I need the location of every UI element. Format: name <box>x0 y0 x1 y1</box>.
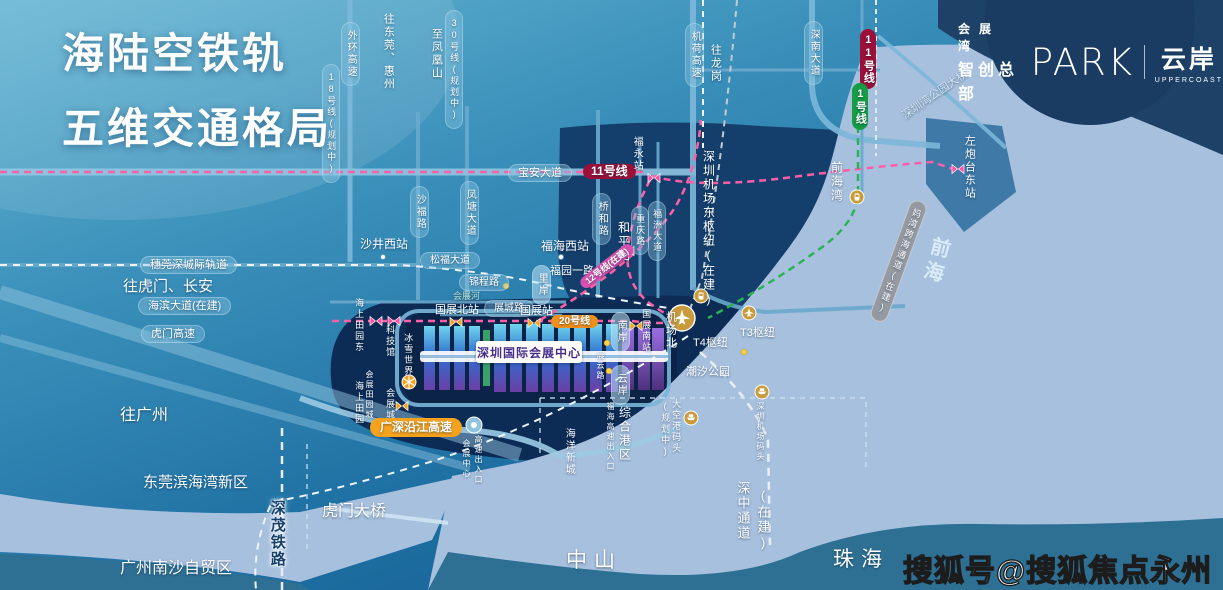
logo-name-cn: 云岸 <box>1161 40 1217 76</box>
exit-convention-center: 会展中心 <box>461 439 470 479</box>
dongguan-binhaiwan-new-area: 东莞滨海湾新区 <box>143 475 248 492</box>
logo-brand-bottom: 智创总部 <box>958 56 1021 104</box>
to-fenghuangshan: 至凤凰山 <box>430 28 442 80</box>
baoan-boulevard: 宝安大道 <box>508 164 572 182</box>
binhai-boulevard: 海滨大道(在建) <box>138 297 231 315</box>
fuhai-west-station: 福海西站 <box>541 240 589 253</box>
zhongshan: 中山 <box>566 549 622 573</box>
jincheng-road: 锦程路 <box>459 274 509 291</box>
shafu-road: 沙福路 <box>410 186 429 238</box>
to-longgang: 往龙岗 <box>709 44 721 83</box>
lian-parcel: 里岸 <box>532 265 551 305</box>
haishang-tianyuan-east-station: 海上田园东 <box>354 298 364 353</box>
shenmao-railway: 深茂铁路 <box>268 500 285 568</box>
qiaohe-road: 桥和路 <box>592 193 611 245</box>
convention-center-label: 深圳国际会展中心 <box>476 341 582 363</box>
fengtang-boulevard: 凤塘大道 <box>460 181 479 245</box>
yunan-parcel: 云岸 <box>611 365 630 405</box>
transportation-map: 外环高速往东莞、惠州18号线(规划中)30号线(规划中)至凤凰山机荷高速往龙岗深… <box>0 0 1223 590</box>
to-humen-changan: 往虎门、长安 <box>123 279 213 296</box>
comprehensive-port-area: 综合港区 <box>617 406 630 462</box>
zhuhai: 珠海 <box>833 548 889 572</box>
line-1-badge-vertical: 1号线 <box>852 83 868 130</box>
line-11-badge-vertical: 11号线 <box>860 29 876 89</box>
zhanyun-road: 展云路 <box>595 351 604 381</box>
expressway-exit: 高速出入口 <box>473 435 482 485</box>
to-dongguan-huizhou: 往东莞、惠州 <box>382 13 394 91</box>
airport-north-station: 机场北 <box>664 311 676 350</box>
qianhaiwan-station: 前海湾 <box>829 161 842 203</box>
fuzhou-boulevard: 福洲大道 <box>648 201 666 261</box>
dakonggang-ferry-terminal: 大空港码头 <box>671 399 681 454</box>
zuopaotai-east-station: 左炮台东站 <box>963 135 975 200</box>
t3-hub: T3枢纽 <box>740 327 775 339</box>
logo-park-text: PARK <box>1031 41 1134 84</box>
nanan-parcel: 南岸 <box>611 312 630 352</box>
shenzhong-corridor: 深中通道 <box>735 481 750 541</box>
outer-ring-expressway: 外环高速 <box>341 22 360 86</box>
shenzhen-airport-ferry-terminal: 深圳机场码头 <box>755 402 764 462</box>
fuhai-expressway-exit: 福海高速出入口 <box>605 402 614 472</box>
watermark: 搜狐号@搜狐焦点永州站 <box>903 546 1223 590</box>
map-title-line2: 五维交通格局 <box>62 95 332 156</box>
guangzhou-nansha-ftz: 广州南沙自贸区 <box>120 560 232 578</box>
shajing-west-station: 沙井西站 <box>360 238 408 251</box>
to-guangzhou: 往广州 <box>120 407 168 425</box>
huizhan-tianyuan-city: 会展田园城 <box>364 370 373 420</box>
dakonggang-ferry-status: (规划中) <box>660 401 670 458</box>
shennan-boulevard: 深南大道 <box>804 21 823 85</box>
ocean-new-town: 海洋新城 <box>563 428 574 476</box>
humen-expressway: 虎门高速 <box>141 325 205 343</box>
map-title-line1: 海陆空铁轨 <box>62 20 332 81</box>
qianhai: 前海 <box>917 234 952 288</box>
chongqing-road: 重庆路 <box>631 206 649 255</box>
guozhan-south-station: 国展南站 <box>641 309 651 353</box>
logo-brand-top: 会展湾 <box>958 20 1021 54</box>
guozhan-station: 国展站 <box>520 305 553 317</box>
guozhan-north-station: 国展北站 <box>435 304 479 316</box>
songfu-boulevard: 松福大道 <box>420 252 480 269</box>
line-20-badge: 20号线 <box>551 315 598 328</box>
science-museum-station: 科技馆 <box>385 325 395 358</box>
jihe-expressway: 机荷高速 <box>685 23 704 87</box>
haishang-tianyuan: 海上田园 <box>354 381 364 425</box>
fuyong-station: 福永站 <box>631 136 642 172</box>
logo-name-en: UPPERCOAST <box>1155 77 1223 84</box>
logo-divider <box>1144 45 1145 79</box>
huizhan-river: 会展河 <box>453 291 480 301</box>
t4-hub: T4枢纽 <box>693 337 728 349</box>
ice-snow-world: 冰雪世界 <box>403 333 413 377</box>
line-30-planned: 30号线(规划中) <box>445 10 463 129</box>
line-11-badge: 11号线 <box>583 164 636 179</box>
suiwanshen-intercity-rail: 穗莞深城际轨道 <box>140 256 237 274</box>
chaoxi-park: 潮汐公园 <box>686 366 730 378</box>
mawan-cross-sea-tunnel: 妈湾跨海通道(在建) <box>868 198 929 324</box>
huizhancheng-station: 会展城 <box>385 388 395 421</box>
humen-bridge: 虎门大桥 <box>322 503 386 521</box>
shenzhong-corridor-status: (在建) <box>755 488 770 552</box>
project-logo: 会展湾 智创总部 PARK 云岸 UPPERCOAST <box>958 20 1223 104</box>
airport-east-hub: 深圳机场东枢纽(在建) <box>701 150 714 308</box>
guangshen-riverside-expressway: 广深沿江高速 <box>370 418 462 437</box>
map-title: 海陆空铁轨 五维交通格局 <box>62 20 332 156</box>
